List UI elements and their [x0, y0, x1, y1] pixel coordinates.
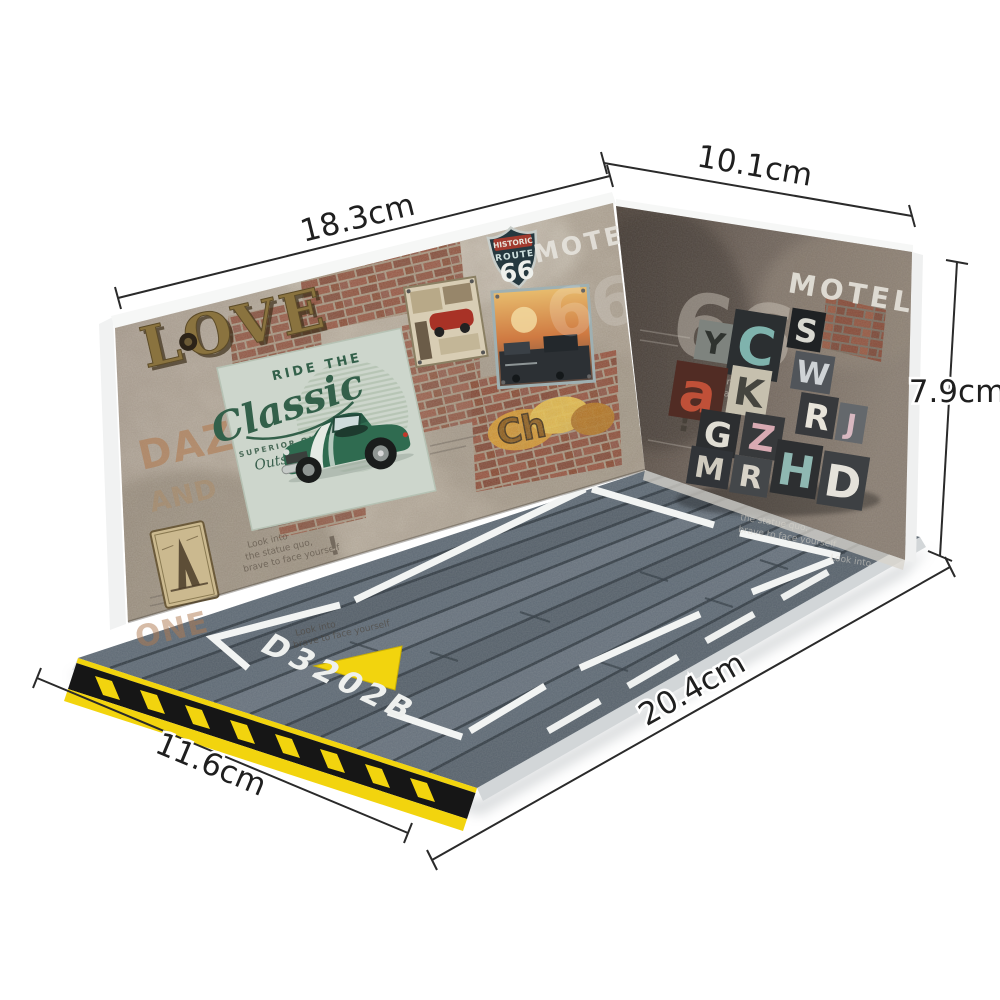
- shield-66: 66: [498, 255, 536, 289]
- svg-text:M: M: [692, 449, 727, 488]
- tin-sign-cars: [404, 277, 488, 367]
- diorama-scene: D3202B: [0, 0, 1000, 1000]
- svg-text:W: W: [793, 354, 831, 394]
- product-photo: D3202B: [0, 0, 1000, 1000]
- label-wall-height: 7.9cm: [909, 374, 1000, 410]
- svg-text:H: H: [774, 444, 818, 500]
